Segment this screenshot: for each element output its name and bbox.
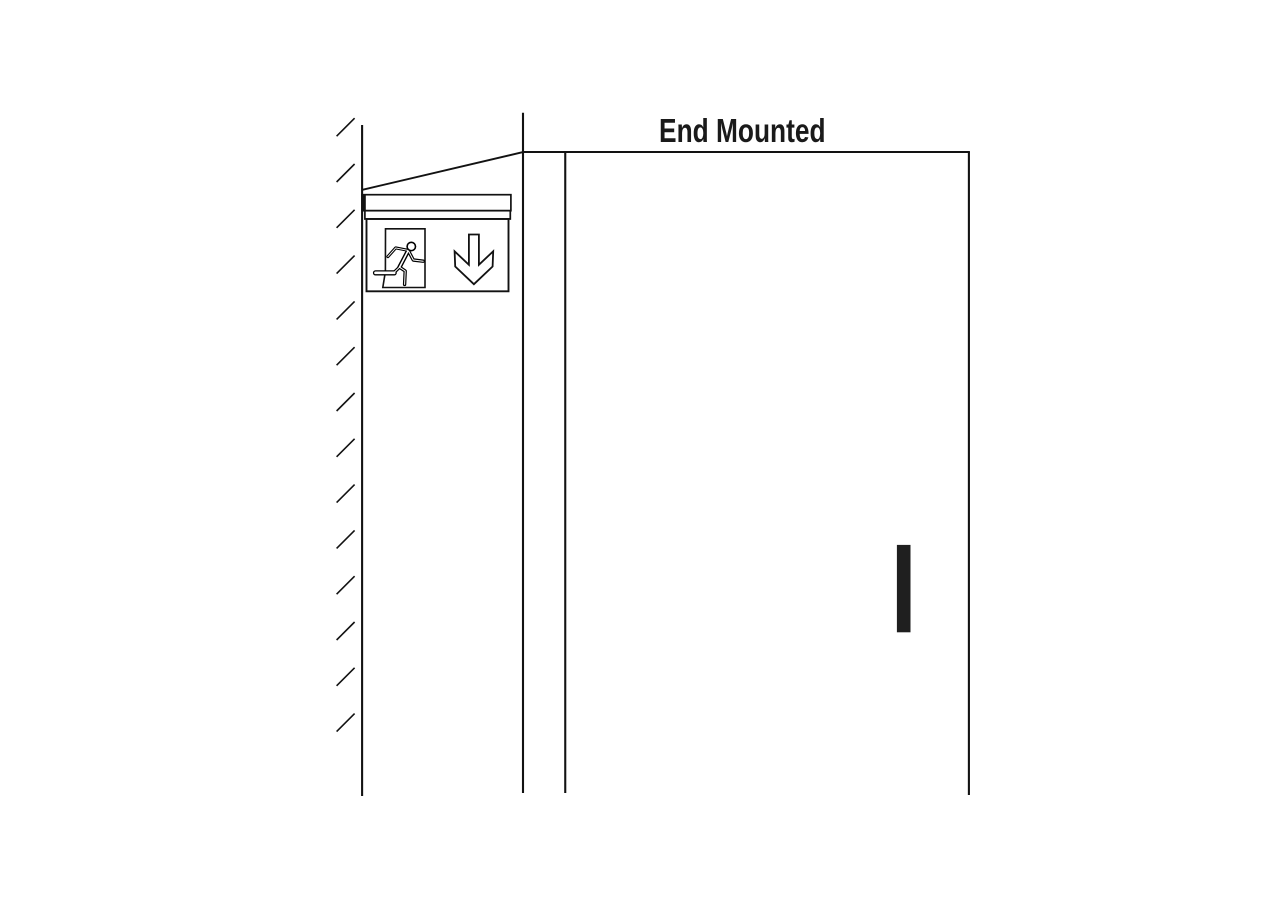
svg-text:End Mounted: End Mounted [659, 112, 826, 149]
